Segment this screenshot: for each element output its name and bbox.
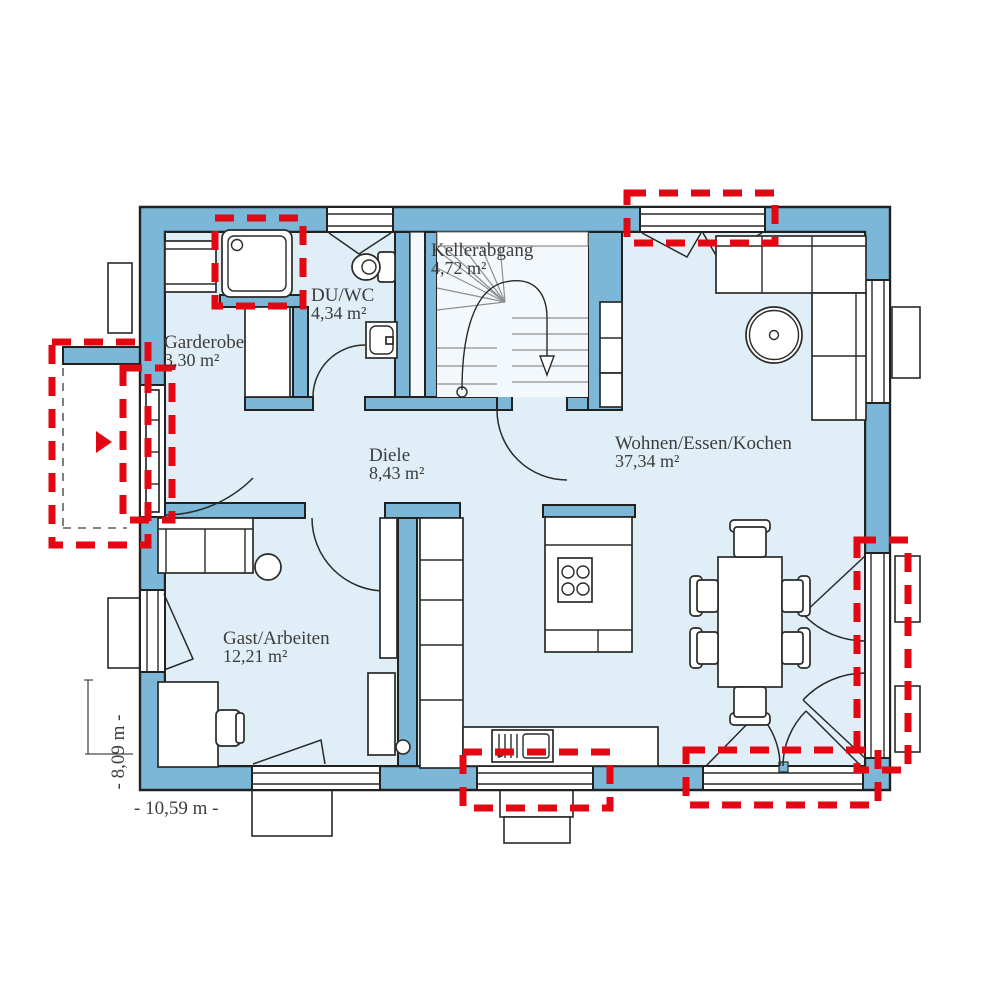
- wall-garderobe-duwc: [293, 307, 308, 397]
- stair-wall-shelf-2: [600, 373, 622, 407]
- kitchen-sink: [492, 730, 553, 762]
- exterior-pillar: [108, 263, 132, 333]
- guest-sofa: [158, 518, 253, 573]
- wall-guest-top: [165, 503, 305, 518]
- porch-wall-stub: [63, 347, 140, 364]
- entrance-porch: [63, 347, 140, 530]
- window-sill-left: [108, 598, 140, 668]
- dining-table: [718, 557, 782, 687]
- area-wohnen: 37,34 m²: [615, 451, 679, 471]
- window-sill-right: [892, 307, 920, 378]
- wardrobe: [165, 241, 216, 292]
- exterior-step-kitchen-2: [504, 817, 570, 843]
- washbasin: [366, 322, 397, 358]
- area-garderobe: 3,30 m²: [164, 350, 219, 370]
- floor-plan: Kellerabgang 4,72 m² DU/WC 4,34 m² Garde…: [0, 0, 1000, 1000]
- wall-duwc-right: [395, 232, 410, 397]
- shaft: [410, 232, 425, 397]
- area-duwc: 4,34 m²: [311, 303, 366, 323]
- kitchen-island: [545, 517, 632, 652]
- tall-cupboard: [380, 518, 397, 658]
- width-dimension: - 10,59 m -: [134, 798, 218, 819]
- shower: [222, 230, 292, 297]
- desk: [158, 682, 218, 767]
- wall-guest-kitchen: [398, 518, 417, 766]
- wall-kitchen-top: [385, 503, 460, 518]
- area-kellerabgang: 4,72 m²: [431, 258, 486, 278]
- wall-island-back: [543, 505, 635, 517]
- pipe-column: [396, 740, 410, 754]
- cupboard-low: [368, 673, 395, 755]
- area-gast: 12,21 m²: [223, 646, 287, 666]
- wall-hall-3: [567, 397, 588, 410]
- desk-chair: [216, 710, 244, 746]
- coffee-table: [746, 307, 802, 363]
- floor-plan-page: Kellerabgang 4,72 m² DU/WC 4,34 m² Garde…: [0, 0, 1000, 1000]
- toilet: [352, 252, 395, 282]
- wall-hall-2: [365, 397, 497, 410]
- exterior-step-kitchen: [500, 790, 573, 817]
- exterior-step-left: [252, 790, 332, 836]
- area-diele: 8,43 m²: [369, 463, 424, 483]
- side-table: [255, 554, 281, 580]
- bath-cabinet: [245, 307, 290, 397]
- cooktop: [558, 558, 592, 602]
- wall-hall-1: [245, 397, 313, 410]
- height-dimension: - 8,09 m -: [108, 715, 129, 790]
